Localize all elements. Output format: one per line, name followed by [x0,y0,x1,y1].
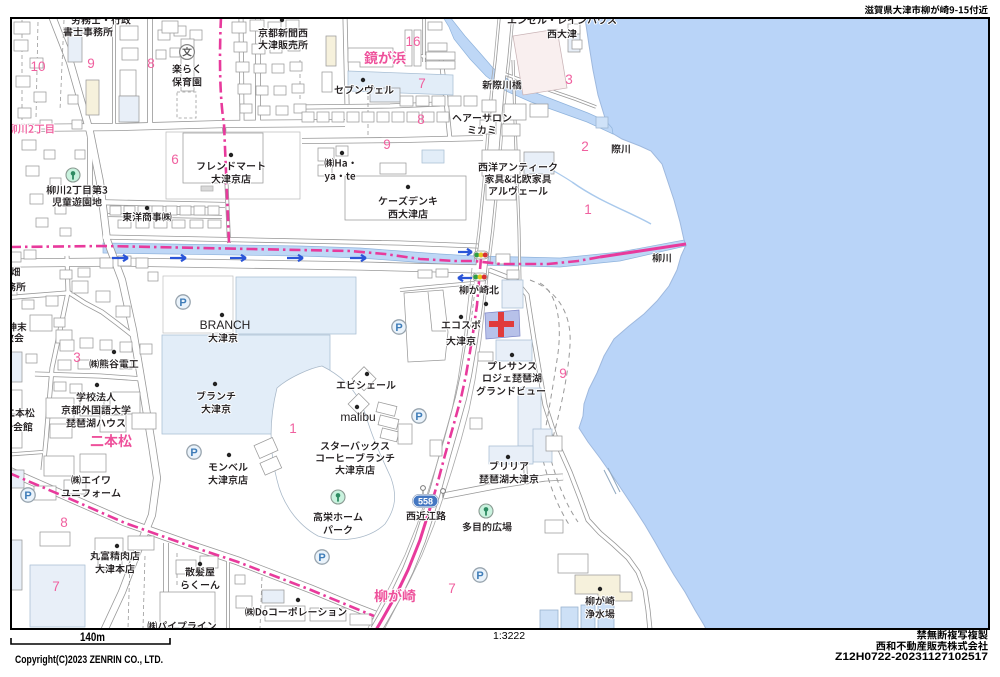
svg-text:16: 16 [405,34,420,49]
svg-text:Z12H0722-20231127102517: Z12H0722-20231127102517 [835,651,988,663]
svg-text:9: 9 [87,56,95,71]
svg-text:malibu: malibu [340,410,375,424]
svg-text:P: P [476,570,483,582]
svg-text:7: 7 [52,579,60,594]
svg-text:1: 1 [584,202,592,217]
svg-text:9: 9 [559,366,567,381]
svg-text:BRANCH: BRANCH [200,318,251,332]
svg-text:558: 558 [418,497,433,507]
svg-text:P: P [190,447,197,459]
svg-text:8: 8 [417,112,425,127]
svg-text:140m: 140m [80,630,105,644]
svg-text:P: P [318,552,325,564]
svg-text:1: 1 [289,421,297,436]
svg-text:8: 8 [147,56,155,71]
svg-text:9: 9 [383,137,391,152]
svg-text:P: P [395,322,402,334]
svg-text:10: 10 [30,59,45,74]
svg-text:7: 7 [418,76,426,91]
svg-text:7: 7 [448,581,456,596]
svg-text:3: 3 [73,350,81,365]
svg-text:1:3222: 1:3222 [493,630,525,642]
svg-text:2: 2 [581,139,589,154]
svg-text:3: 3 [565,72,573,87]
svg-text:P: P [24,490,31,502]
svg-text:8: 8 [60,515,68,530]
svg-text:P: P [179,297,186,309]
svg-text:Copyright(C)2023 ZENRIN CO., L: Copyright(C)2023 ZENRIN CO., LTD. [15,654,163,666]
svg-text:P: P [415,411,422,423]
svg-text:6: 6 [171,152,179,167]
